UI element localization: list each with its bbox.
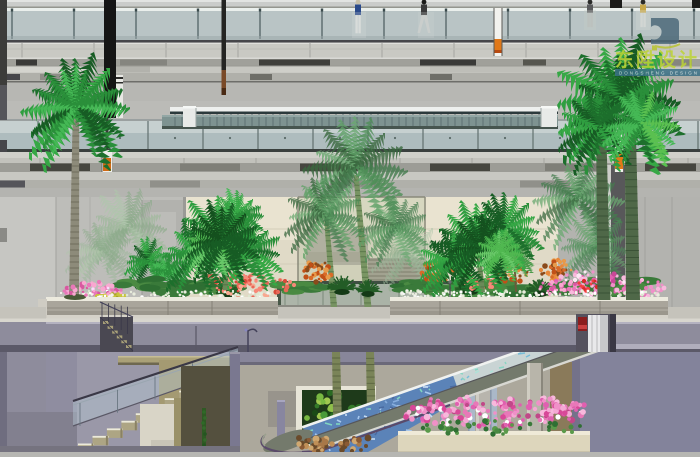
- svg-text:东陞设计: 东陞设计: [615, 48, 699, 71]
- svg-text:DONGSHENG DESIGN: DONGSHENG DESIGN: [619, 71, 699, 76]
